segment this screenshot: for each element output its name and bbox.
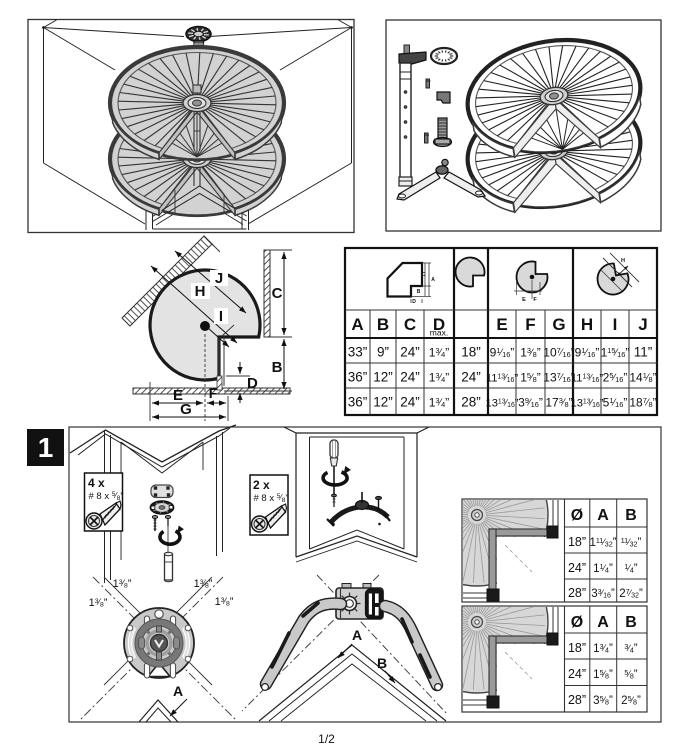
svg-text:4 x: 4 x bbox=[88, 476, 105, 490]
svg-text:25⁄16”: 25⁄16” bbox=[603, 371, 628, 385]
svg-text:F: F bbox=[209, 385, 218, 401]
svg-text:13⁄4”: 13⁄4” bbox=[429, 346, 450, 360]
svg-text:33”: 33” bbox=[348, 345, 368, 360]
svg-text:91⁄16”: 91⁄16” bbox=[490, 346, 515, 360]
svg-text:C: C bbox=[272, 285, 283, 302]
svg-text:18”: 18” bbox=[568, 535, 586, 549]
svg-text:13⁄8”: 13⁄8” bbox=[520, 346, 541, 360]
svg-text:max.: max. bbox=[430, 328, 448, 338]
svg-text:24”: 24” bbox=[568, 667, 586, 681]
svg-text:A: A bbox=[352, 627, 362, 643]
svg-text:B: B bbox=[377, 655, 387, 671]
svg-text:J: J bbox=[215, 270, 223, 287]
svg-text:28”: 28” bbox=[568, 586, 586, 600]
svg-text:18”: 18” bbox=[568, 641, 586, 655]
svg-text:E: E bbox=[496, 315, 507, 334]
svg-text:B: B bbox=[625, 507, 637, 524]
svg-text:15⁄8”: 15⁄8” bbox=[520, 371, 541, 385]
svg-text:E: E bbox=[522, 297, 526, 303]
svg-text:11”: 11” bbox=[634, 345, 653, 360]
svg-text:13⁄4”: 13⁄4” bbox=[429, 396, 450, 410]
svg-text:I: I bbox=[219, 308, 223, 325]
svg-text:28”: 28” bbox=[568, 693, 586, 707]
svg-text:H: H bbox=[581, 315, 593, 334]
svg-text:H: H bbox=[621, 258, 625, 264]
svg-text:91⁄16”: 91⁄16” bbox=[575, 346, 600, 360]
svg-text:51⁄16”: 51⁄16” bbox=[603, 396, 628, 410]
svg-text:A: A bbox=[597, 507, 609, 524]
svg-text:36”: 36” bbox=[348, 395, 368, 410]
svg-text:C: C bbox=[404, 315, 416, 334]
svg-text:B: B bbox=[272, 359, 283, 376]
svg-text:Ø: Ø bbox=[571, 614, 583, 631]
svg-text:A: A bbox=[597, 614, 609, 631]
svg-text:I: I bbox=[613, 315, 618, 334]
svg-text:1: 1 bbox=[38, 432, 54, 463]
svg-text:24”: 24” bbox=[461, 370, 481, 385]
svg-text:12”: 12” bbox=[373, 370, 393, 385]
svg-text:G: G bbox=[180, 401, 192, 418]
svg-text:D: D bbox=[412, 299, 416, 305]
svg-text:39⁄16”: 39⁄16” bbox=[518, 396, 543, 410]
svg-text:18”: 18” bbox=[461, 345, 481, 360]
svg-text:28”: 28” bbox=[461, 395, 481, 410]
svg-text:115⁄16”: 115⁄16” bbox=[601, 346, 630, 360]
svg-text:A: A bbox=[431, 277, 435, 283]
svg-text:24”: 24” bbox=[400, 370, 420, 385]
svg-text:Ø: Ø bbox=[571, 507, 583, 524]
svg-text:1/2: 1/2 bbox=[318, 732, 335, 746]
svg-text:D: D bbox=[247, 375, 258, 392]
svg-text:13⁄4”: 13⁄4” bbox=[429, 371, 450, 385]
svg-text:F: F bbox=[525, 315, 535, 334]
svg-text:24”: 24” bbox=[400, 395, 420, 410]
svg-text:36”: 36” bbox=[348, 370, 368, 385]
svg-text:J: J bbox=[638, 315, 647, 334]
svg-text:24”: 24” bbox=[400, 345, 420, 360]
svg-text:B: B bbox=[377, 315, 389, 334]
svg-text:A: A bbox=[351, 315, 363, 334]
svg-text:12”: 12” bbox=[373, 395, 393, 410]
svg-text:2 x: 2 x bbox=[253, 478, 270, 492]
svg-text:H: H bbox=[195, 283, 206, 300]
svg-text:B: B bbox=[417, 289, 421, 295]
svg-text:B: B bbox=[625, 614, 637, 631]
svg-text:9”: 9” bbox=[377, 345, 389, 360]
svg-text:24”: 24” bbox=[568, 561, 586, 575]
svg-text:C: C bbox=[422, 272, 426, 278]
svg-text:A: A bbox=[173, 683, 183, 699]
svg-text:G: G bbox=[552, 315, 565, 334]
